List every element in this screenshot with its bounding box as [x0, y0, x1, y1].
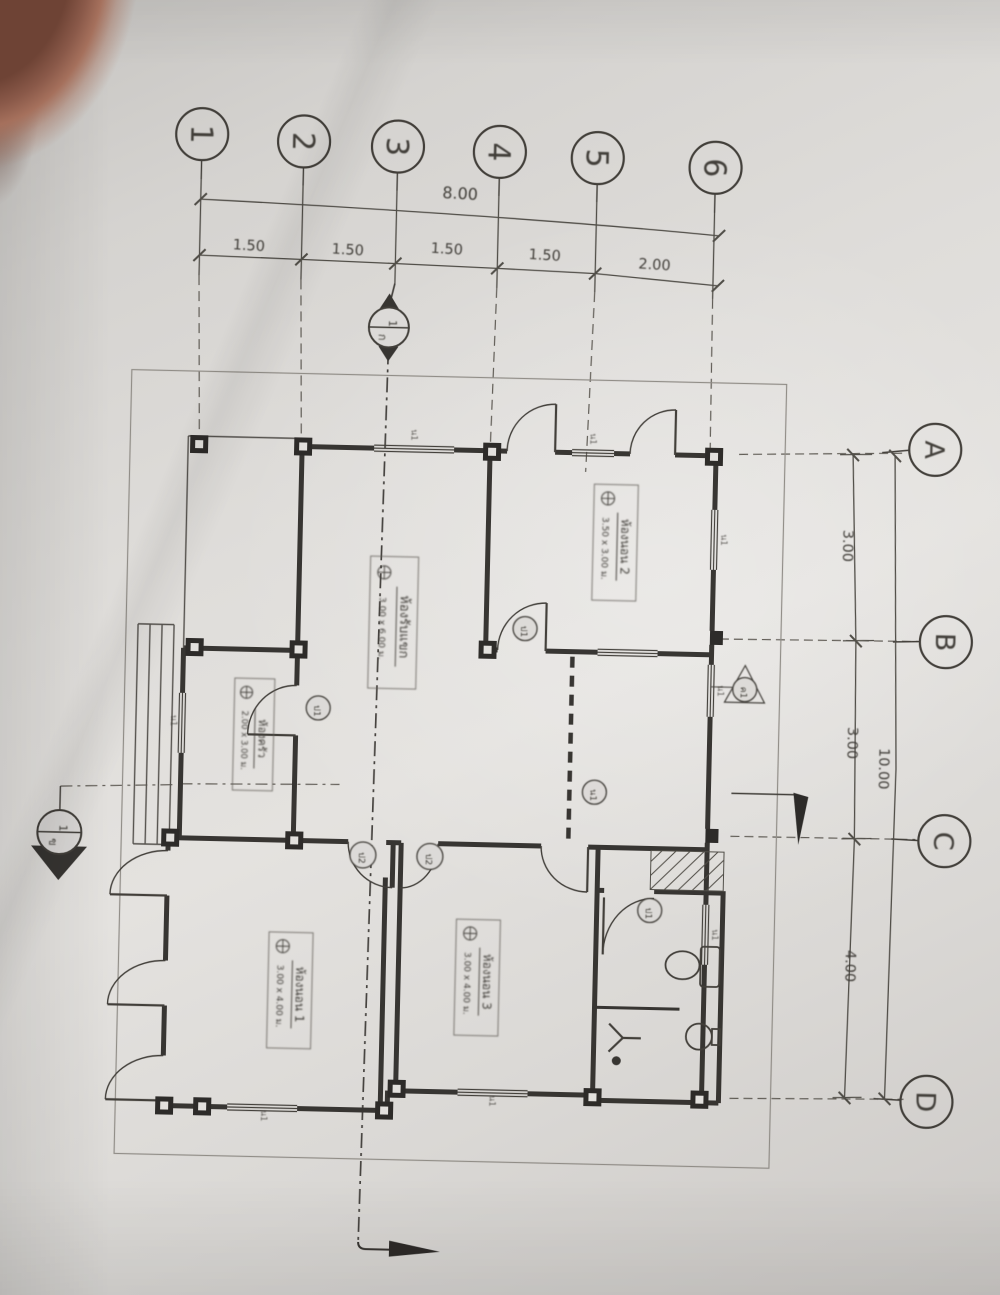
grid-line-4 [490, 288, 497, 452]
hatched-counter [650, 851, 724, 892]
grid-label-B: B [929, 632, 960, 651]
tag-text: น1 [587, 789, 597, 801]
tag-text: ป1 [643, 908, 653, 920]
door-arc-b1-2 [107, 959, 165, 1005]
door-leaves [105, 394, 676, 1111]
tag-text: ค1 [738, 687, 748, 699]
flag-leader [731, 793, 794, 794]
dim-seg-2: 1.50 [331, 242, 364, 260]
dimension-text-right: 3.00 3.00 4.00 10.00 [829, 530, 896, 983]
floor-plan-drawing: 1 2 3 4 5 6 8.00 1.50 1.50 1.50 1.50 2 [0, 0, 1000, 1295]
room-label-bedroom2: ห้องนอน 2 3.50 x 3.00 ม. [592, 484, 639, 601]
room-name: ห้องนอน 1 [292, 966, 307, 1022]
section-arrow-bottom [358, 1240, 440, 1258]
opening-tags: ป1 ป2 ป2 ป1 ป1 น1 [302, 612, 767, 925]
grid-label-2: 2 [285, 131, 320, 151]
grid-bubble-labels-right: A B C D [903, 440, 967, 1113]
room-size: 2.00 x 3.00 ม. [238, 710, 249, 770]
tag-door-kitchen: ป1 [306, 696, 331, 721]
drain-point [612, 1056, 621, 1065]
window-tick-tags: น1 น1 น1 น1 น1 น1 น1 น1 [159, 424, 731, 1132]
doors [105, 394, 676, 1111]
dim-seg-3: 1.50 [430, 241, 463, 259]
door-arc-b1-1 [110, 849, 168, 895]
window-east-3 [702, 905, 709, 965]
room-labels: ห้องนอน 2 3.50 x 3.00 ม. ห้องรับแขก 3.00… [227, 476, 639, 1056]
section-arrow-down [378, 346, 398, 361]
room-label-bedroom1: ห้องนอน 1 3.00 x 4.00 ม. [267, 932, 314, 1049]
grid-rows-dashed [709, 449, 924, 1102]
tag-door-corridor-left: ป2 [350, 842, 377, 869]
window-north-1 [374, 445, 454, 453]
wall-west-bedroom1 [162, 838, 168, 1106]
section-flag-right [730, 791, 808, 845]
tag-text: ป1 [311, 705, 321, 717]
section-row-dashed [60, 778, 339, 792]
room-name: ห้องครัว [255, 719, 269, 758]
window-tag: น1 [168, 715, 178, 726]
wall-south [162, 1085, 718, 1118]
room-name: ห้องนอน 3 [479, 954, 494, 1010]
room-name: ห้องนอน 2 [617, 519, 632, 575]
section-left-lower: ข [46, 838, 59, 846]
grid-line-5 [586, 292, 595, 472]
tag-door-bathroom: ป1 [637, 898, 662, 923]
window-tag: น1 [715, 685, 725, 696]
room-size: 3.00 x 6.00 ม. [375, 597, 386, 660]
window-tag: น1 [408, 429, 418, 440]
section-left-leader [60, 786, 61, 810]
wall-hall-east [486, 451, 491, 650]
grid-label-3: 3 [379, 137, 414, 157]
dim-line-total [200, 199, 719, 236]
room-label-bedroom3: ห้องนอน 3 3.00 x 4.00 ม. [454, 919, 501, 1036]
dimension-lines-right [825, 449, 905, 1105]
grid-line-6 [709, 299, 713, 453]
grid-label-A: A [918, 440, 949, 460]
window-tag: น1 [258, 1110, 268, 1121]
column-outer [155, 434, 727, 1126]
counter-hatch [650, 851, 724, 892]
section-left-upper: 1 [56, 825, 69, 832]
room-name: ห้องรับแขก [395, 595, 411, 658]
floor-drain [609, 1024, 642, 1053]
window-tag: น1 [709, 929, 719, 940]
tag-column: ค1 [710, 665, 765, 703]
wall-north [302, 446, 716, 455]
door-arcs [105, 394, 676, 1111]
dim-right-total: 10.00 [875, 748, 892, 790]
grid-label-5: 5 [579, 148, 614, 168]
dim-right-3: 4.00 [841, 950, 858, 983]
wall-partition-dashed [568, 657, 572, 842]
porch-and-steps [133, 435, 302, 848]
grid-line-2 [297, 279, 305, 441]
dim-total-top: 8.00 [442, 183, 479, 204]
columns [155, 434, 727, 1126]
section-bottom-arrowhead [389, 1241, 440, 1258]
dim-right-2: 3.00 [843, 727, 860, 760]
section-top-upper: 1 [386, 320, 399, 327]
door-arc-north-2 [630, 409, 676, 455]
tag-text: ป2 [356, 852, 366, 864]
window-tag: น1 [486, 1095, 496, 1106]
dim-seg-5: 2.00 [638, 257, 671, 275]
door-arc-b1-3 [105, 1054, 163, 1100]
grid-bubble-labels-top: 1 2 3 4 5 6 [183, 124, 733, 178]
grid-label-C: C [927, 831, 958, 851]
grid-label-1: 1 [183, 124, 218, 144]
tag-door-corridor-right: ป2 [417, 843, 444, 870]
section-left-divider [37, 832, 81, 833]
window-bedroom2 [597, 649, 657, 656]
wall-bath-divider [595, 1007, 680, 1009]
section-marker-left: 1 ข [30, 785, 88, 880]
window-tag: น1 [587, 433, 597, 444]
steps [133, 624, 174, 845]
grid-line-1 [195, 275, 203, 439]
tag-text: ป1 [518, 626, 528, 638]
section-divider [369, 327, 409, 328]
room-size: 3.00 x 4.00 ม. [460, 952, 471, 1015]
room-label-living: ห้องรับแขก 3.00 x 6.00 ม. [368, 556, 419, 689]
window-north-2 [572, 450, 614, 457]
column-inner [160, 440, 718, 1122]
door-arc-north-1 [507, 403, 556, 452]
room-size: 3.50 x 3.00 ม. [598, 517, 609, 580]
window-east-2 [707, 665, 714, 717]
walls [162, 444, 733, 1118]
tag-text: ป2 [423, 854, 433, 866]
sink [686, 1023, 713, 1050]
dim-right-1: 3.00 [839, 530, 856, 563]
grid-label-D: D [909, 1091, 940, 1112]
section-marker-top: 1 ก [368, 293, 410, 362]
grid-label-6: 6 [696, 158, 731, 178]
porch-edge [184, 436, 303, 651]
tag-door-bedroom2: ป1 [513, 616, 538, 641]
grid-label-4: 4 [481, 142, 516, 162]
dim-seg-4: 1.50 [528, 247, 561, 265]
window-kitchen [178, 693, 185, 753]
door-arc-bedroom3 [540, 846, 588, 892]
window-east-1 [710, 510, 717, 570]
section-top-lower: ก [376, 334, 389, 341]
toilet-bowl [665, 951, 700, 980]
window-tag: น1 [718, 534, 728, 545]
room-size: 3.00 x 4.00 ม. [273, 965, 284, 1028]
dim-seg-1: 1.50 [232, 237, 265, 255]
wall-kitchen [179, 648, 297, 841]
tag-window-partition: น1 [582, 780, 607, 805]
photographed-floor-plan: 1 2 3 4 5 6 8.00 1.50 1.50 1.50 1.50 2 [0, 0, 1000, 1295]
roof-outline [114, 370, 787, 1169]
